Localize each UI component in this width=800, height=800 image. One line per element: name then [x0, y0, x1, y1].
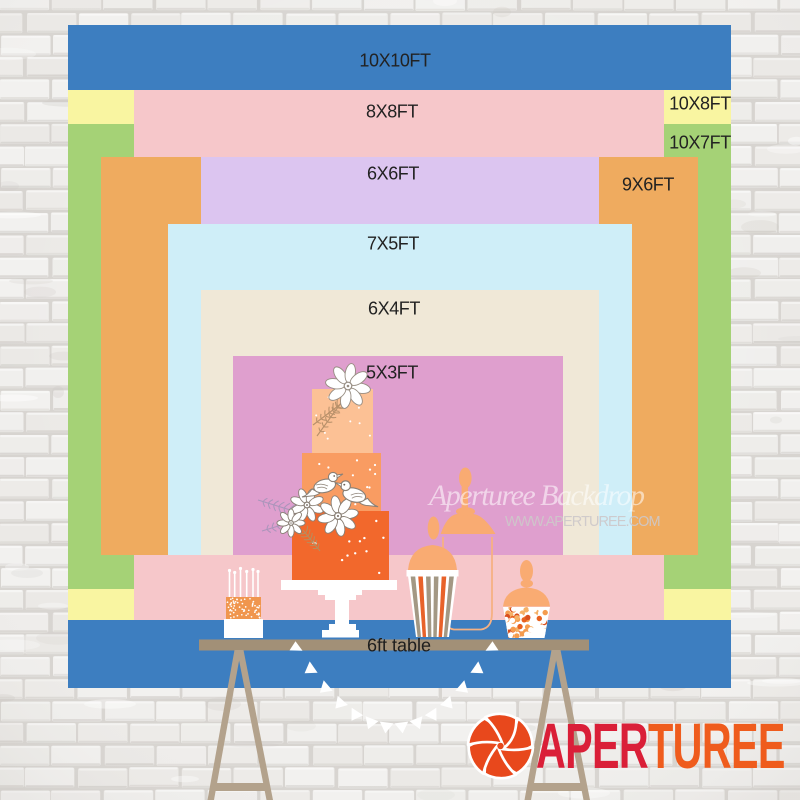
- svg-text:6ft table: 6ft table: [367, 636, 431, 656]
- svg-text:WWW.APERTUREE.COM: WWW.APERTUREE.COM: [505, 514, 662, 530]
- svg-text:APERTUREE: APERTUREE: [536, 711, 785, 782]
- svg-text:Aperturee Backdrop: Aperturee Backdrop: [427, 479, 645, 512]
